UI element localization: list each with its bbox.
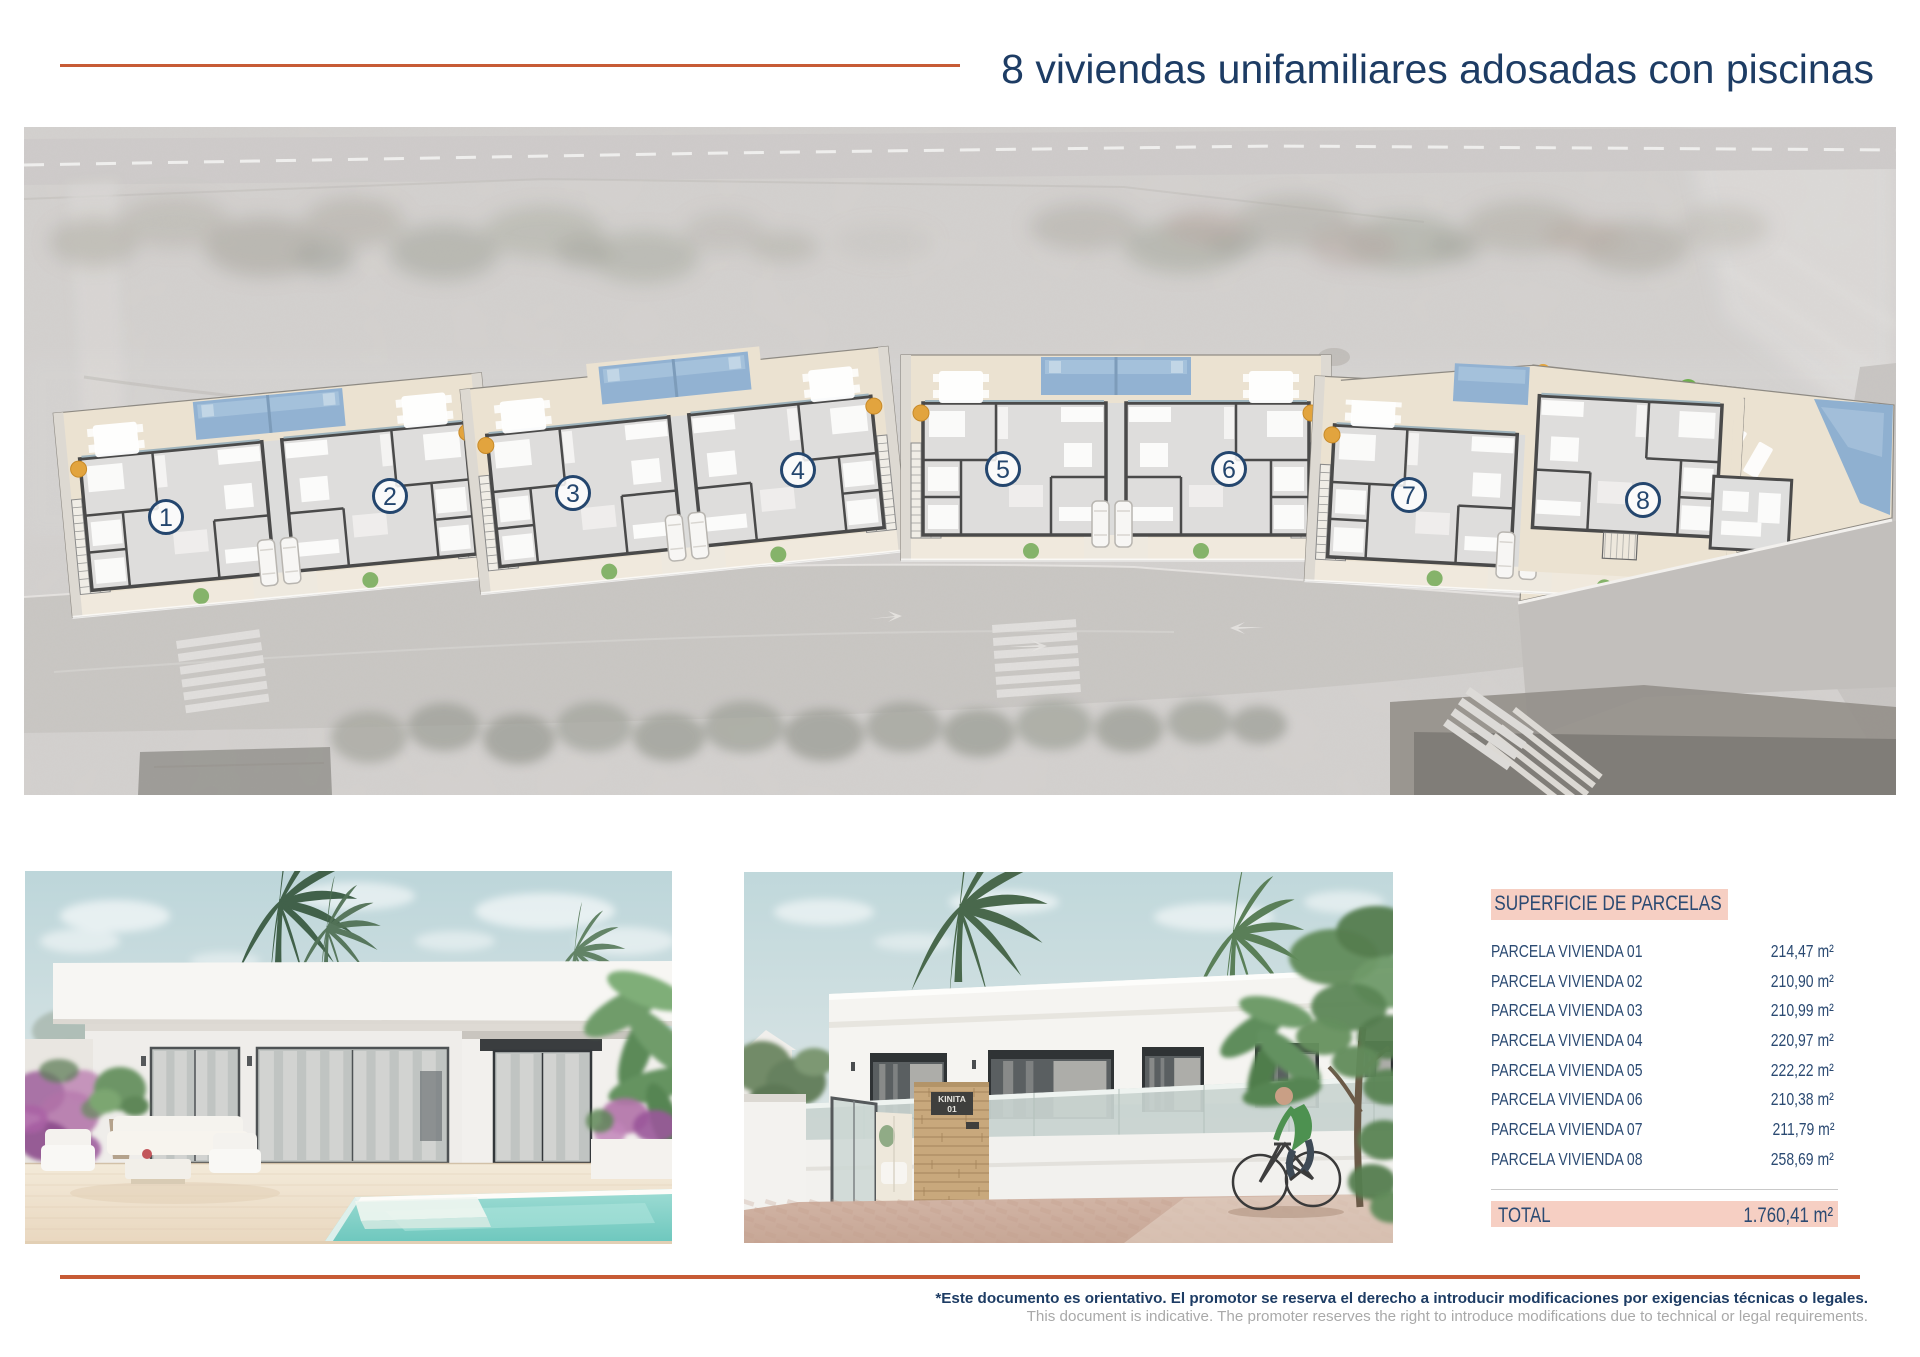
svg-text:5: 5	[996, 456, 1010, 484]
svg-text:3: 3	[566, 480, 580, 508]
svg-text:KINITA: KINITA	[938, 1094, 966, 1104]
svg-text:7: 7	[1402, 482, 1416, 510]
svg-text:2: 2	[383, 483, 397, 511]
svg-text:01: 01	[947, 1104, 957, 1114]
svg-text:6: 6	[1222, 456, 1236, 484]
svg-text:8: 8	[1636, 487, 1650, 515]
svg-text:4: 4	[791, 457, 805, 485]
svg-text:1: 1	[159, 504, 173, 532]
